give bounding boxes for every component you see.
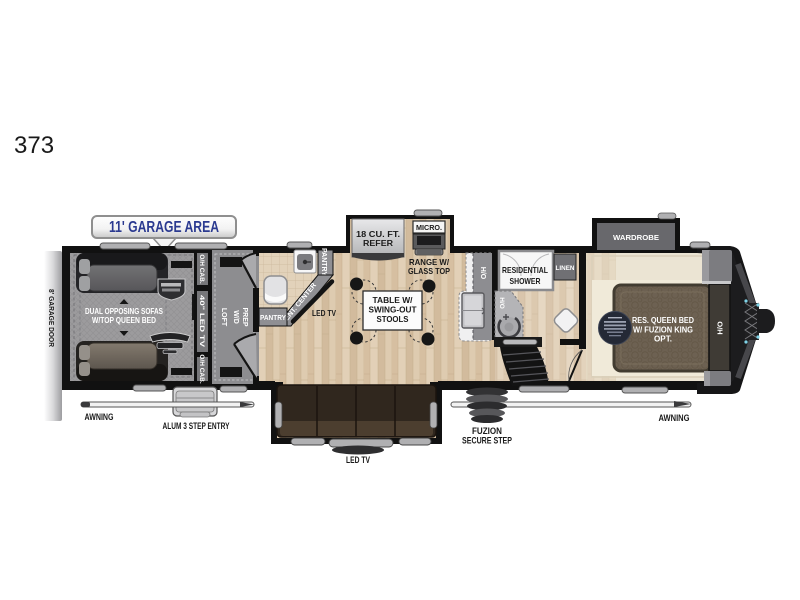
svg-text:O/H CAB.: O/H CAB.: [198, 254, 205, 283]
svg-text:PREP: PREP: [241, 307, 248, 326]
svg-text:373: 373: [14, 132, 54, 159]
svg-text:SECURE STEP: SECURE STEP: [462, 436, 512, 446]
svg-text:40" LED TV: 40" LED TV: [198, 295, 205, 348]
svg-text:H/O: H/O: [479, 267, 486, 280]
svg-text:AWNING: AWNING: [85, 412, 114, 422]
svg-text:FUZION: FUZION: [472, 426, 502, 436]
svg-text:8' GARAGE DOOR: 8' GARAGE DOOR: [47, 289, 56, 348]
svg-text:W/ FUZION KING: W/ FUZION KING: [633, 326, 693, 335]
svg-text:SWING-OUT: SWING-OUT: [369, 306, 417, 315]
svg-text:H/O: H/O: [498, 297, 505, 309]
svg-text:W/TOP QUEEN BED: W/TOP QUEEN BED: [92, 316, 156, 325]
svg-text:LOFT: LOFT: [220, 308, 227, 327]
svg-text:WARDROBE: WARDROBE: [613, 233, 659, 242]
svg-text:PANTRY: PANTRY: [260, 315, 286, 322]
svg-text:O/H CAB.: O/H CAB.: [198, 354, 205, 383]
svg-text:W/D: W/D: [232, 310, 239, 324]
svg-text:TABLE W/: TABLE W/: [373, 296, 414, 305]
svg-text:SHOWER: SHOWER: [510, 276, 541, 286]
svg-text:DUAL OPPOSING SOFAS: DUAL OPPOSING SOFAS: [85, 307, 164, 316]
svg-text:REFER: REFER: [363, 239, 393, 248]
svg-text:OPT.: OPT.: [654, 335, 672, 344]
svg-text:LED TV: LED TV: [312, 308, 336, 318]
svg-text:AWNING: AWNING: [659, 413, 690, 423]
svg-text:PANTRY: PANTRY: [320, 248, 327, 276]
svg-text:LINEN: LINEN: [556, 265, 575, 272]
svg-text:MICRO.: MICRO.: [416, 223, 442, 232]
svg-text:LED TV: LED TV: [346, 455, 370, 465]
svg-text:RESIDENTIAL: RESIDENTIAL: [502, 265, 548, 275]
svg-text:ALUM 3 STEP ENTRY: ALUM 3 STEP ENTRY: [163, 421, 230, 431]
svg-text:STOOLS: STOOLS: [377, 315, 410, 324]
svg-text:11' GARAGE AREA: 11' GARAGE AREA: [109, 219, 219, 236]
svg-text:RES. QUEEN BED: RES. QUEEN BED: [632, 316, 694, 325]
svg-text:H/O: H/O: [716, 321, 725, 335]
svg-text:18 CU. FT.: 18 CU. FT.: [356, 230, 400, 239]
svg-text:GLASS TOP: GLASS TOP: [408, 266, 450, 276]
